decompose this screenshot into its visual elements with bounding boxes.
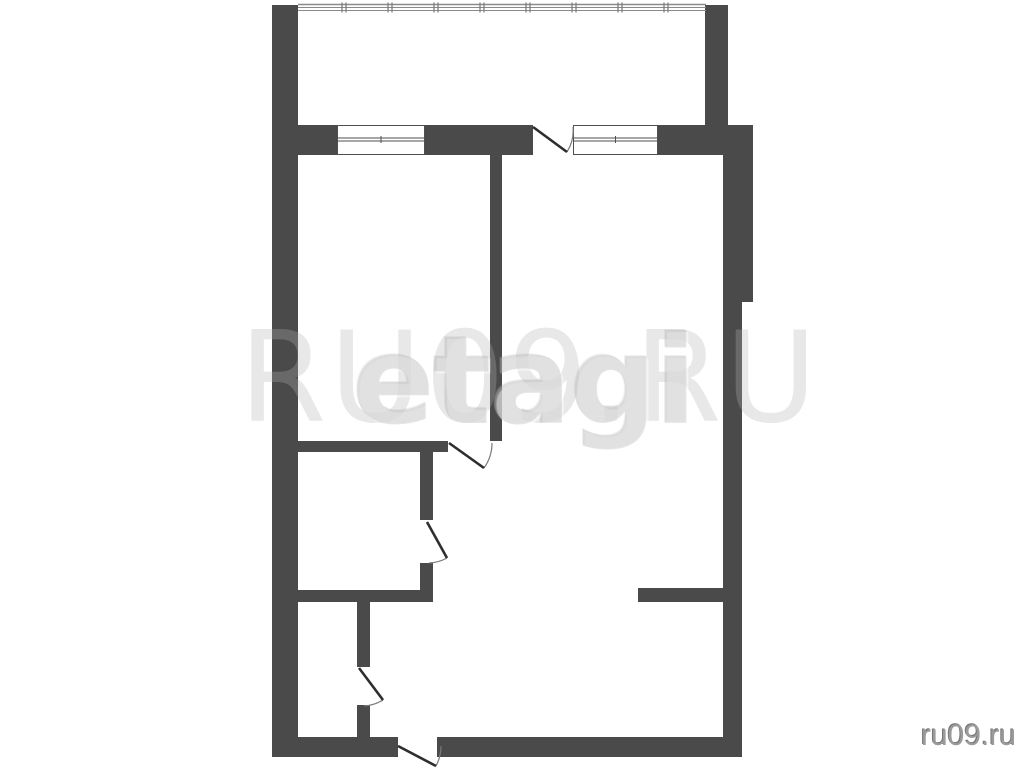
wall-living-stub (638, 588, 723, 602)
site-watermark: ru09.ru (921, 721, 1016, 751)
floor-plan-page: RU09.RU etagi ru09.ru (0, 0, 1024, 768)
wall-hall-upper (357, 602, 370, 667)
door-hall-leaf (359, 668, 383, 700)
door-bathroom-leaf (427, 522, 447, 558)
wall-left-outer (272, 5, 298, 757)
wall-bottom-left (272, 737, 398, 757)
door-balcony-leaf (533, 127, 567, 152)
floor-plan-drawing (0, 0, 1024, 768)
wall-bathroom-bottom (293, 590, 433, 602)
door-bedroom-leaf (449, 443, 484, 468)
wall-right-lower (723, 302, 742, 757)
wall-window-mid-segment (425, 125, 533, 155)
wall-hall-lower (357, 705, 370, 737)
door-balcony-swing-arc (567, 127, 573, 152)
door-bedroom-swing-arc (484, 443, 492, 468)
wall-right-upper (723, 125, 753, 302)
wall-bottom-right (437, 737, 742, 757)
wall-bathroom-top (293, 441, 448, 452)
wall-bathroom-right-upper (420, 452, 433, 520)
wall-window-left-segment (298, 125, 337, 155)
wall-room-divider (490, 155, 502, 441)
door-entrance-leaf (398, 746, 436, 766)
door-bathroom-swing-arc (429, 558, 447, 563)
wall-balcony-right (705, 5, 728, 125)
